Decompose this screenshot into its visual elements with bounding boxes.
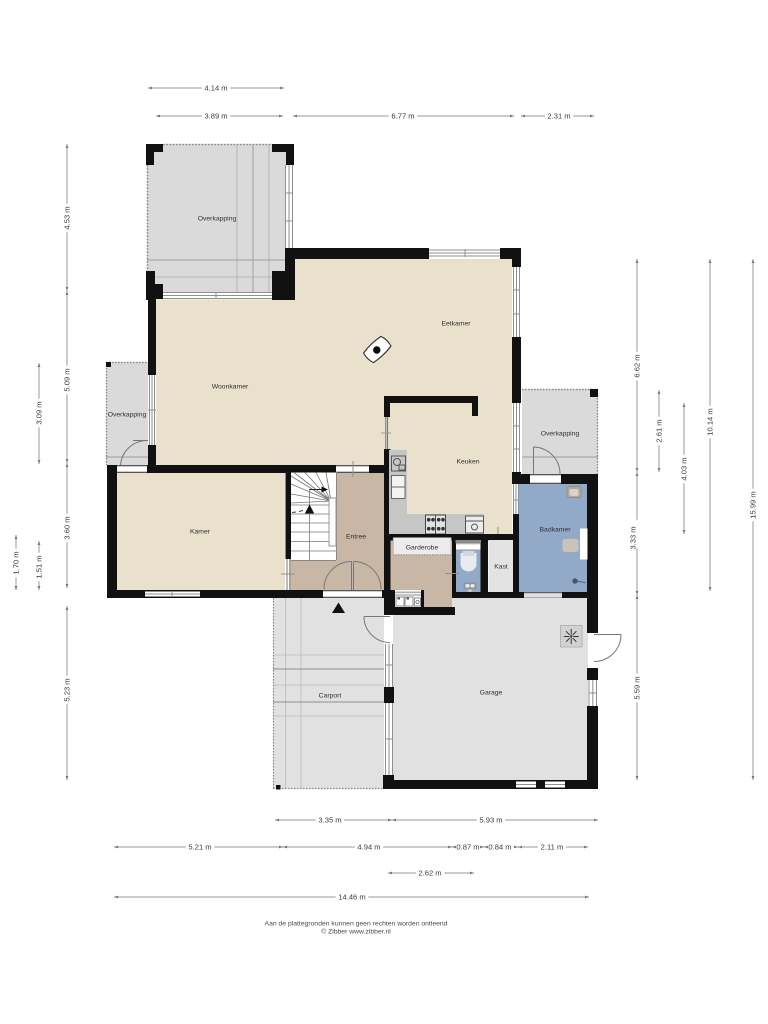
svg-text:4.53 m: 4.53 m [63, 206, 72, 229]
svg-text:5.09 m: 5.09 m [63, 368, 72, 391]
svg-text:6.77 m: 6.77 m [391, 112, 414, 121]
svg-text:Eetkamer: Eetkamer [441, 321, 471, 328]
svg-text:Overkapping: Overkapping [108, 412, 147, 419]
svg-text:10.14 m: 10.14 m [706, 408, 715, 435]
svg-text:14.46 m: 14.46 m [338, 893, 365, 902]
svg-text:Entree: Entree [346, 534, 366, 541]
svg-text:2.61 m: 2.61 m [655, 419, 664, 442]
svg-text:5.21 m: 5.21 m [188, 843, 211, 852]
svg-text:Kamer: Kamer [190, 529, 211, 536]
svg-text:Carport: Carport [319, 693, 342, 700]
svg-text:5.59 m: 5.59 m [633, 676, 642, 699]
svg-text:2.11 m: 2.11 m [541, 843, 564, 852]
svg-text:4.94 m: 4.94 m [357, 843, 380, 852]
svg-text:3.89 m: 3.89 m [204, 112, 227, 121]
svg-text:5.23 m: 5.23 m [63, 678, 72, 701]
svg-text:Aan de plattegronden kunnen ge: Aan de plattegronden kunnen geen rechten… [265, 921, 448, 928]
svg-text:3.33 m: 3.33 m [629, 526, 638, 549]
svg-text:© Zibber www.zibber.nl: © Zibber www.zibber.nl [321, 928, 391, 936]
svg-text:Woonkamer: Woonkamer [212, 384, 249, 391]
svg-text:Overkapping: Overkapping [198, 216, 237, 223]
svg-text:1.70 m: 1.70 m [12, 551, 21, 574]
svg-text:4.03 m: 4.03 m [680, 457, 689, 480]
svg-text:Kast: Kast [494, 564, 508, 571]
svg-text:Keuken: Keuken [456, 459, 479, 466]
svg-text:4.14 m: 4.14 m [204, 84, 227, 93]
svg-text:1.51 m: 1.51 m [35, 555, 44, 578]
svg-text:5.93 m: 5.93 m [479, 816, 502, 825]
svg-text:Badkamer: Badkamer [540, 527, 572, 534]
svg-text:2.31 m: 2.31 m [547, 112, 570, 121]
svg-text:Garage: Garage [480, 690, 503, 697]
svg-text:0.84 m: 0.84 m [488, 843, 511, 852]
svg-text:Garderobe: Garderobe [406, 545, 439, 552]
svg-text:15.99 m: 15.99 m [749, 491, 758, 518]
svg-text:0.87 m: 0.87 m [456, 843, 479, 852]
svg-text:3.09 m: 3.09 m [35, 401, 44, 424]
svg-text:2.62 m: 2.62 m [418, 869, 441, 878]
svg-text:Overkapping: Overkapping [541, 431, 580, 438]
svg-text:3.35 m: 3.35 m [318, 816, 341, 825]
svg-text:6.62 m: 6.62 m [633, 354, 642, 377]
svg-text:3.60 m: 3.60 m [63, 516, 72, 539]
